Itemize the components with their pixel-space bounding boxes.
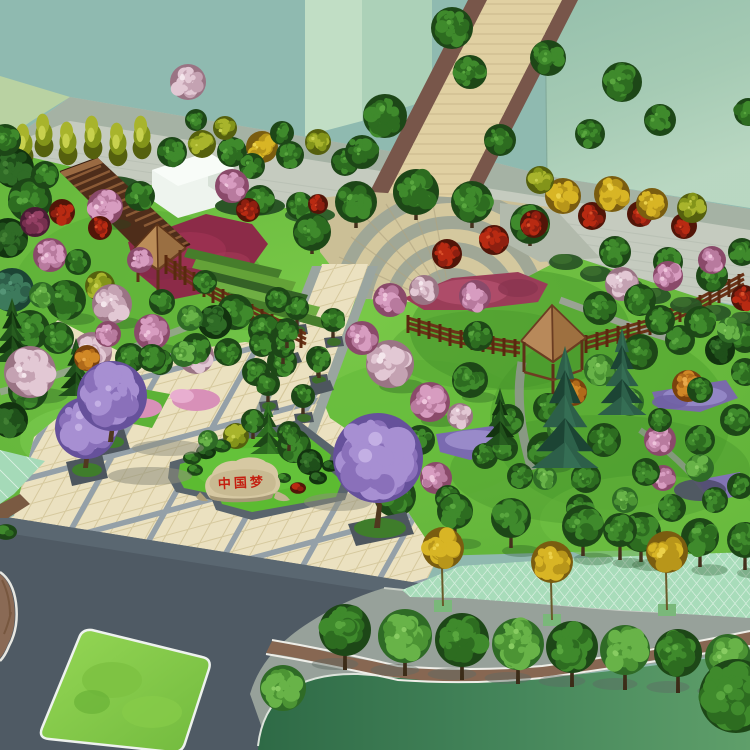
svg-text:中国梦: 中国梦 xyxy=(218,474,267,491)
